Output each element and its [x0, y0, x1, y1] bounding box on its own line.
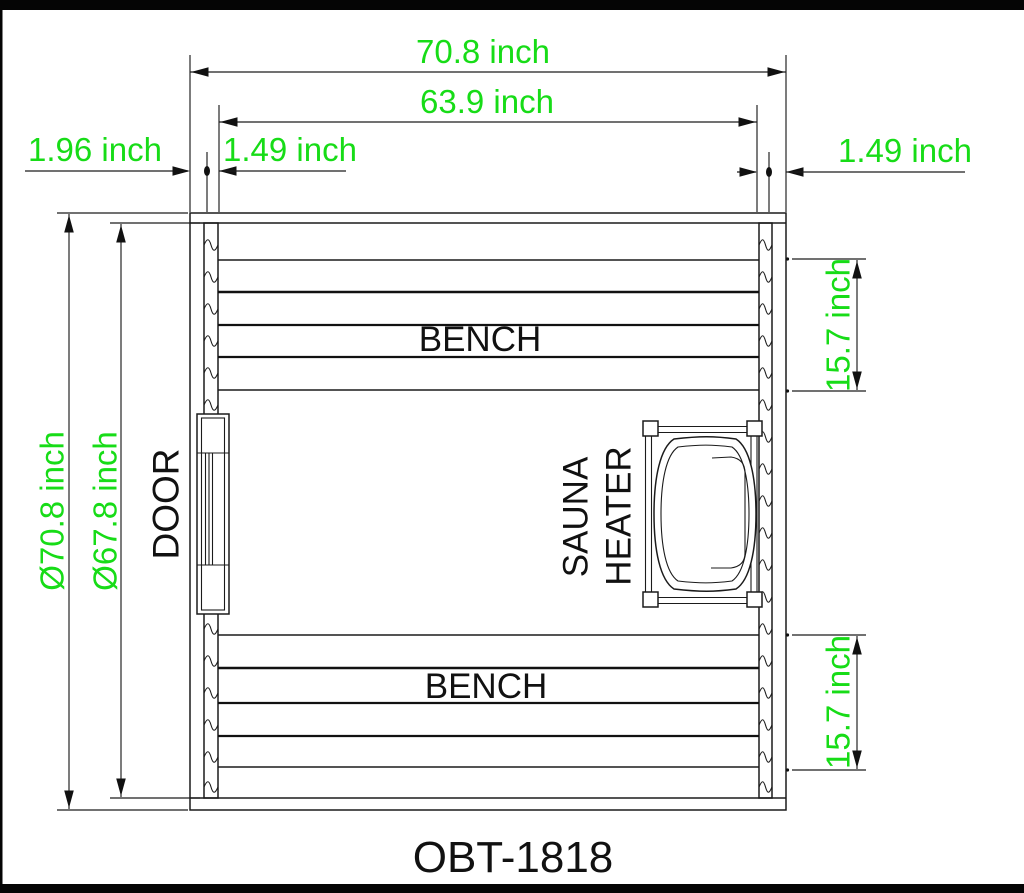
top-bench-label: BENCH [419, 320, 542, 359]
bottom-border-bar [0, 884, 1024, 893]
outer-width-value: 70.8 inch [416, 33, 550, 70]
heater-corner-post [747, 421, 762, 436]
left-inner-offset-value: 1.49 inch [223, 131, 357, 168]
heater-corner-post [747, 592, 762, 607]
left-edge-offset-value: 1.96 inch [28, 131, 162, 168]
left-border-bar [0, 0, 3, 893]
model-label: OBT-1818 [413, 833, 614, 882]
sauna-heater-label-line1: SAUNA [557, 456, 596, 577]
top-bench-depth-value: 15.7 inch [820, 258, 857, 392]
screenshot-stage: BENCH BENCH DOOR [0, 0, 1024, 893]
heater-body-outer [654, 437, 756, 592]
door-label: DOOR [146, 449, 187, 560]
sauna-heater-label-line2: HEATER [600, 446, 639, 585]
sauna-floorplan-svg: BENCH BENCH DOOR [0, 0, 1024, 893]
bottom-bench-label: BENCH [425, 667, 548, 706]
inner-width-value: 63.9 inch [420, 83, 554, 120]
heater-corner-post [643, 421, 658, 436]
top-border-bar [0, 0, 1024, 10]
right-inner-offset-value: 1.49 inch [838, 132, 972, 169]
inner-height-value: Ø67.8 inch [87, 431, 124, 591]
outer-height-value: Ø70.8 inch [34, 431, 71, 591]
bottom-bench-depth-value: 15.7 inch [820, 635, 857, 769]
heater-corner-post [643, 592, 658, 607]
